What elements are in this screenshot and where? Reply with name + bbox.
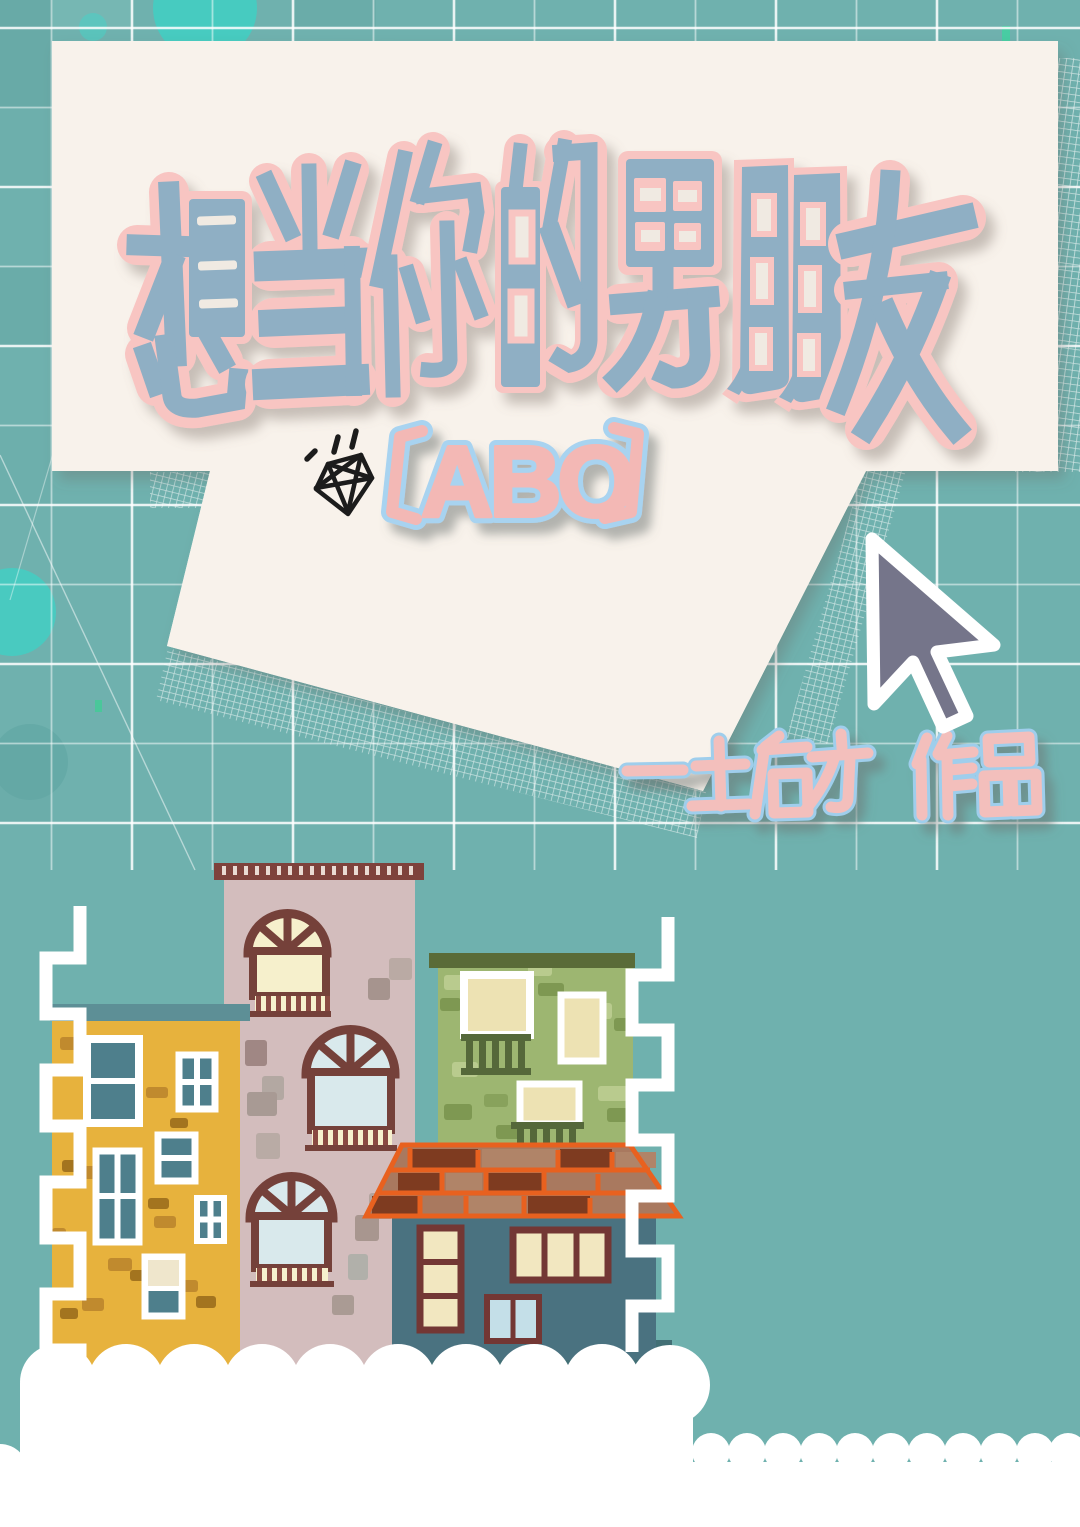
svg-text:ABO: ABO <box>421 426 631 538</box>
